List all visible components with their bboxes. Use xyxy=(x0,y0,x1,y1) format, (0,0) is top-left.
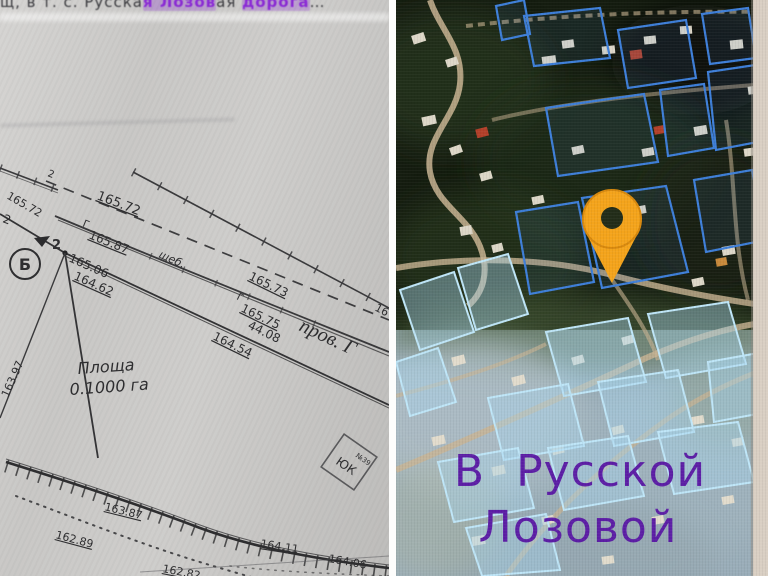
axis-station-2: 2 xyxy=(46,168,56,181)
area-value: 0.1000 га xyxy=(69,375,149,399)
note-mid: ая xyxy=(216,0,242,11)
pin-hole xyxy=(601,207,623,229)
note-pre: щ, в т. с. Русска xyxy=(0,0,143,11)
survey-arrowhead xyxy=(34,236,50,247)
caption-line-2: Лозовой xyxy=(479,502,678,553)
handwritten-note-line: щ, в т. с. Русская Лозовая дорога… xyxy=(0,0,389,14)
caption-line-1: В Русской xyxy=(454,446,706,497)
edge-point-2: 2 xyxy=(1,212,13,228)
elevation-163-87: 163.87 xyxy=(103,500,144,522)
cadastral-plan-scan: щ, в т. с. Русская Лозовая дорога… xyxy=(0,0,389,576)
note-post: … xyxy=(310,0,326,11)
elevation-165-72: 165.72 xyxy=(95,189,143,219)
note-text: щ, в т. с. Русская Лозовая дорога… xyxy=(0,0,389,10)
elevation-165-87: 165.87 xyxy=(87,228,131,257)
satellite-map-photo: В Русской Лозовой xyxy=(396,0,768,576)
surface-gravel-label: щеб. xyxy=(157,248,187,271)
elevation-162-89: 162.89 xyxy=(54,528,95,551)
photo-gutter xyxy=(389,0,396,576)
satellite-scene: В Русской Лозовой xyxy=(396,0,768,576)
elevation-163-97: 163.97 xyxy=(0,359,26,399)
plan-linework: Б №39 ЮК 165.72 2 2 165.72 Г 165.8 xyxy=(0,0,389,576)
screenshot-collage: щ, в т. с. Русская Лозовая дорога… xyxy=(0,0,768,576)
photo-edge-line xyxy=(751,0,753,576)
scan-glare xyxy=(0,13,389,21)
elevation-162-82: 162.82 xyxy=(161,562,201,576)
elevation-clipped-right: 16 xyxy=(373,301,389,319)
lane-name-label: пров. Г xyxy=(296,315,361,361)
note-highlight-2: дорога xyxy=(242,0,309,11)
area-label: Площа xyxy=(77,355,135,378)
elevation-165-73: 165.73 xyxy=(247,269,291,300)
stamp-box: №39 ЮК xyxy=(321,434,377,490)
point-b-marker: Б xyxy=(10,249,40,279)
photo-edge-strip xyxy=(753,0,768,576)
point-b-label: Б xyxy=(19,255,31,274)
elevation-164-06: 164.06 xyxy=(327,552,367,571)
symbol-g1: Г xyxy=(81,219,91,231)
note-highlight-1: я Лозов xyxy=(143,0,216,11)
elevation-164-11: 164.11 xyxy=(260,537,300,556)
elevation-164-54: 164.54 xyxy=(211,329,255,360)
station-2-label: 2 xyxy=(52,238,61,253)
